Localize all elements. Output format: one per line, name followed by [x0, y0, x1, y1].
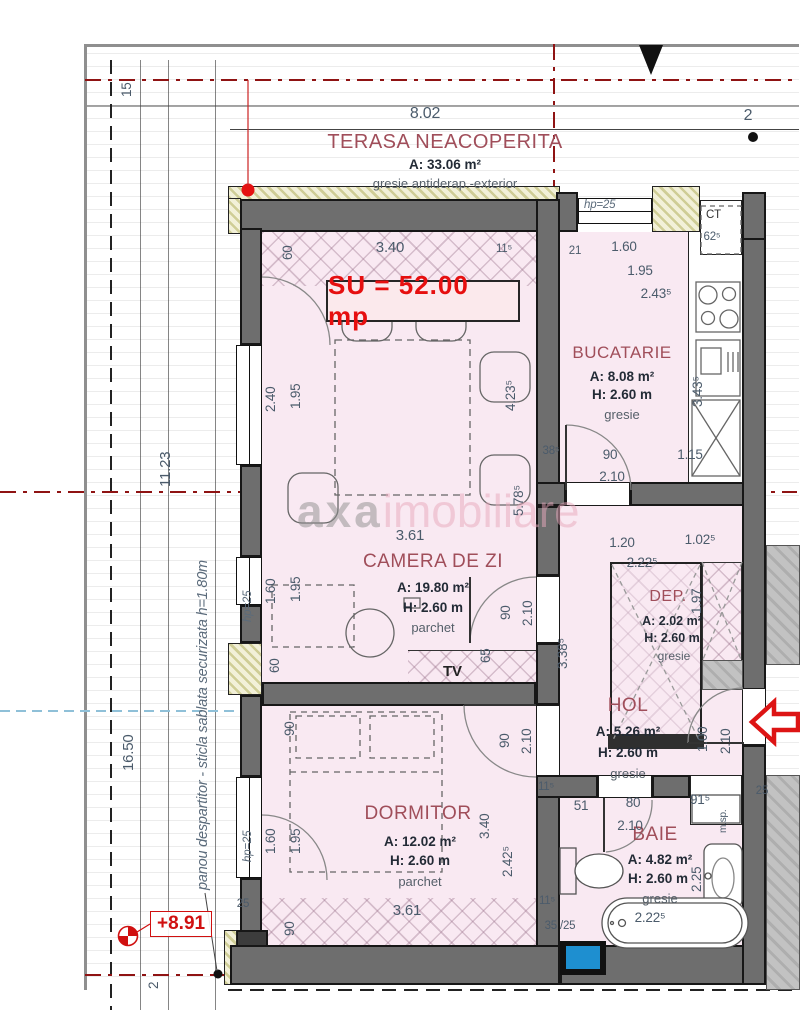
dim-label: 11⁵: [539, 896, 555, 908]
level-label: +8.91: [150, 911, 212, 937]
insulation-pier: [652, 186, 700, 232]
dim-label: 3.43⁵: [691, 376, 705, 407]
dim-label: 2.22⁵: [635, 911, 666, 925]
wall-stub: [702, 660, 743, 690]
dim-label: 1.95: [627, 264, 652, 278]
dim-label: 2.10: [719, 729, 733, 754]
dim-label: 16.50: [121, 734, 136, 771]
dim-label: 2.10: [617, 819, 642, 833]
room-height-hol: H: 2.60 m: [598, 745, 658, 760]
dim-label: 90: [499, 605, 513, 620]
room-label-dep: DEP.: [649, 588, 686, 606]
dim-label: 90: [498, 733, 512, 748]
room-area-camera: A: 19.80 m²: [397, 580, 469, 595]
tv-niche-hatch: [408, 650, 536, 683]
dim-label: 65: [479, 648, 493, 663]
dim-label: 11⁵: [538, 782, 554, 794]
wall: [240, 695, 262, 777]
room-height-dep: H: 2.60 m: [644, 631, 700, 645]
door-opening-camera: [536, 576, 560, 643]
dim-line: [168, 60, 169, 1010]
site-line: [85, 105, 799, 107]
entry-door-opening: [742, 688, 766, 745]
dim-label: 25: [237, 899, 249, 911]
blue-niche: [566, 946, 600, 969]
room-height-camera: H: 2.60 m: [403, 600, 463, 615]
dim-label: 1.95: [289, 577, 303, 602]
dim-label: 60: [268, 658, 282, 673]
room-area-bucatarie: A: 8.08 m²: [590, 369, 655, 384]
dim-label: 5.78⁵: [512, 485, 526, 516]
hp-label: hp=25: [584, 200, 615, 212]
room-label-camera: CAMERA DE ZI: [363, 551, 503, 573]
kitchen-counter: [688, 232, 743, 482]
room-height-baie: H: 2.60 m: [628, 871, 688, 886]
dim-label: 4.23⁵: [504, 380, 518, 411]
dim-label: 1.02⁵: [685, 533, 716, 547]
window: [236, 777, 262, 878]
room-area-hol: A: 5.26 m²: [596, 724, 661, 739]
wall: [240, 228, 262, 345]
dim-label: 2: [147, 982, 161, 989]
axis-line: [85, 79, 798, 81]
site-line: [85, 44, 799, 47]
msp-label: m.sp.: [719, 810, 729, 833]
property-line: [228, 989, 795, 991]
room-label-dormitor: DORMITOR: [364, 803, 471, 825]
dim-label: 1.97: [690, 589, 704, 614]
room-floor-dep: gresie: [658, 649, 691, 663]
divider-note: panou despartitor - sticla sablata secur…: [196, 560, 211, 890]
room-height-bucatarie: H: 2.60 m: [592, 387, 652, 402]
dim-label: 21: [569, 246, 581, 258]
dim-label: 80: [626, 796, 641, 810]
dim-label: 3.61: [393, 903, 421, 918]
wall: [240, 465, 262, 557]
wall: [230, 945, 560, 985]
neighbor-space: [766, 545, 800, 665]
dim-label: 2: [744, 108, 753, 124]
dim-line: [140, 60, 141, 1010]
wall: [742, 238, 766, 690]
dim-label: 62⁵: [704, 232, 721, 244]
wall: [742, 745, 766, 985]
dim-label: 51: [574, 799, 589, 813]
dim-label: 3.40: [478, 814, 492, 839]
dim-label: 1.00: [696, 727, 710, 752]
dim-label: 2.25: [690, 867, 704, 892]
hp-label: hp=25: [243, 591, 255, 622]
room-floor-camera: parchet: [411, 620, 454, 635]
dim-label: 2.10: [521, 601, 535, 626]
dim-label: 1.20: [609, 536, 634, 550]
dim-label: 25: [756, 786, 768, 798]
dim-label: 1.60: [264, 829, 278, 854]
room-label-bucatarie: BUCATARIE: [572, 343, 671, 363]
room-area-terasa: A: 33.06 m²: [409, 157, 481, 172]
dim-label: 90: [603, 448, 618, 462]
dim-label: 90: [283, 921, 297, 936]
dim-label: 8.02: [410, 106, 440, 122]
wall: [652, 775, 690, 798]
floor-plan: axaimobiliare SU = 52.00 mp TERASA NEACO…: [0, 0, 800, 1022]
room-height-dormitor: H: 2.60 m: [390, 853, 450, 868]
hp-label: hp=25: [243, 831, 255, 862]
site-line: [84, 44, 87, 990]
window: [236, 345, 262, 465]
dim-label: 38⁵: [543, 446, 560, 458]
room-area-baie: A: 4.82 m²: [628, 852, 693, 867]
dim-label: 1.60: [611, 240, 636, 254]
dim-label: 90: [283, 721, 297, 736]
room-area-dormitor: A: 12.02 m²: [384, 834, 456, 849]
ct-label: CT: [706, 210, 721, 222]
dim-label: 3.61: [396, 528, 424, 543]
dim-line: [230, 129, 799, 130]
dim-label: 35 /25: [545, 921, 576, 933]
dim-label: 1.15: [677, 448, 702, 462]
dim-label: 1.60: [264, 579, 278, 604]
dim-label: 2.10: [520, 729, 534, 754]
dim-label: 1.95: [289, 829, 303, 854]
tv-label: TV: [443, 664, 462, 679]
dim-label: 1.95: [289, 384, 303, 409]
room-floor-baie: gresie: [642, 891, 677, 906]
room-floor-bucatarie: gresie: [604, 407, 639, 422]
room-floor-terasa: gresie antiderap.-exterior: [373, 176, 518, 191]
dim-label: 15: [120, 82, 134, 97]
dim-label: 2.42⁵: [501, 846, 515, 877]
watermark-part1: axa: [297, 485, 383, 537]
insulation-pier: [228, 643, 262, 695]
neighbor-space: [766, 775, 800, 990]
watermark: axaimobiliare: [297, 488, 580, 534]
room-area-dep: A: 2.02 m²: [642, 614, 702, 628]
room-floor-hol: gresie: [610, 766, 645, 781]
dim-label: 11⁵: [496, 244, 512, 256]
room-floor-dormitor: parchet: [398, 874, 441, 889]
dim-label: 2.40: [264, 387, 278, 412]
dim-label: 11.23: [158, 452, 173, 487]
wall: [240, 199, 556, 232]
dim-label: 60: [281, 245, 295, 260]
wall: [262, 682, 536, 706]
property-line: [110, 60, 112, 1010]
dim-label: 2.22⁵: [627, 556, 658, 570]
dim-label: 2.10: [599, 470, 624, 484]
usable-area-badge: SU = 52.00 mp: [326, 280, 520, 322]
room-label-terasa: TERASA NEACOPERITA: [327, 131, 562, 154]
dim-line: [215, 60, 216, 1010]
dim-label: 3.38⁵: [556, 638, 570, 669]
dim-label: 91⁵: [690, 793, 710, 807]
dim-label: 3.40: [376, 240, 404, 255]
dim-label: 2.43⁵: [641, 287, 672, 301]
wall: [742, 192, 766, 240]
door-opening-dormitor: [536, 705, 560, 777]
room-label-hol: HOL: [608, 695, 649, 717]
shaft-hatch: [702, 562, 742, 662]
